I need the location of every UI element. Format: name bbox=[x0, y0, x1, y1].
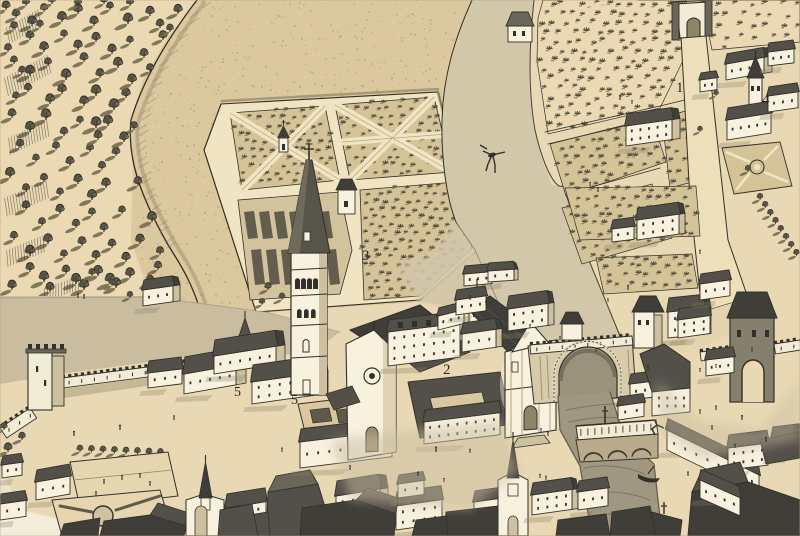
svg-text:4: 4 bbox=[762, 92, 770, 108]
svg-text:1: 1 bbox=[676, 80, 684, 96]
svg-text:5: 5 bbox=[234, 385, 241, 400]
svg-text:3: 3 bbox=[362, 248, 370, 264]
svg-text:5: 5 bbox=[291, 393, 298, 408]
svg-text:2: 2 bbox=[443, 362, 451, 378]
